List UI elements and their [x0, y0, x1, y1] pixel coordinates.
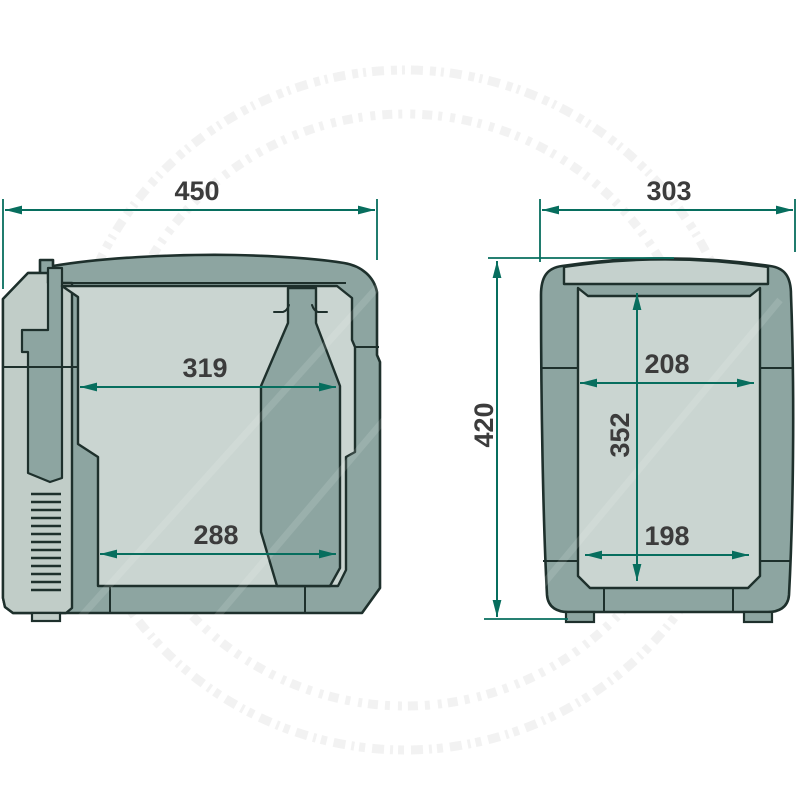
dimension-value: 208 [644, 349, 689, 379]
side-section-view [3, 255, 380, 621]
dimension-value: 303 [646, 176, 691, 206]
dimension-value: 420 [469, 402, 499, 447]
dimension-value: 352 [605, 412, 635, 457]
front-foot-left [566, 612, 594, 622]
dimension-overall-depth: 303 [540, 176, 795, 262]
dimension-value: 319 [182, 353, 227, 383]
drawing-canvas: 450 303 420 352 208 198 319 288 [0, 0, 800, 800]
dimension-value: 450 [174, 176, 219, 206]
dimension-drawing: 450 303 420 352 208 198 319 288 [0, 0, 800, 800]
side-rear-foot [32, 613, 60, 621]
front-lid-strip [564, 260, 768, 285]
dimension-value: 198 [644, 521, 689, 551]
front-foot-right [744, 612, 772, 622]
dimension-value: 288 [193, 520, 238, 550]
